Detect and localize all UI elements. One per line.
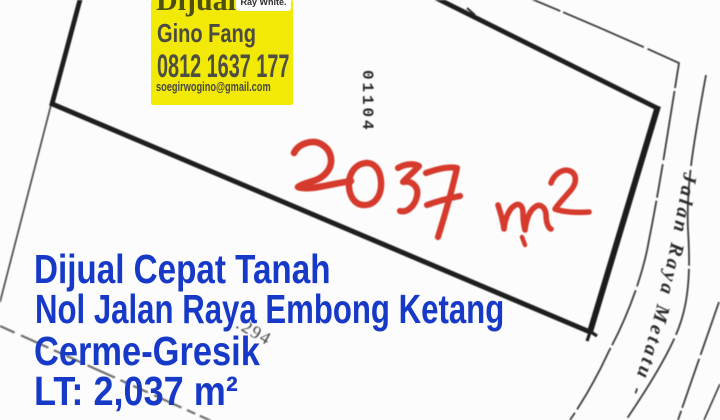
svg-text:01104: 01104 (358, 70, 376, 133)
